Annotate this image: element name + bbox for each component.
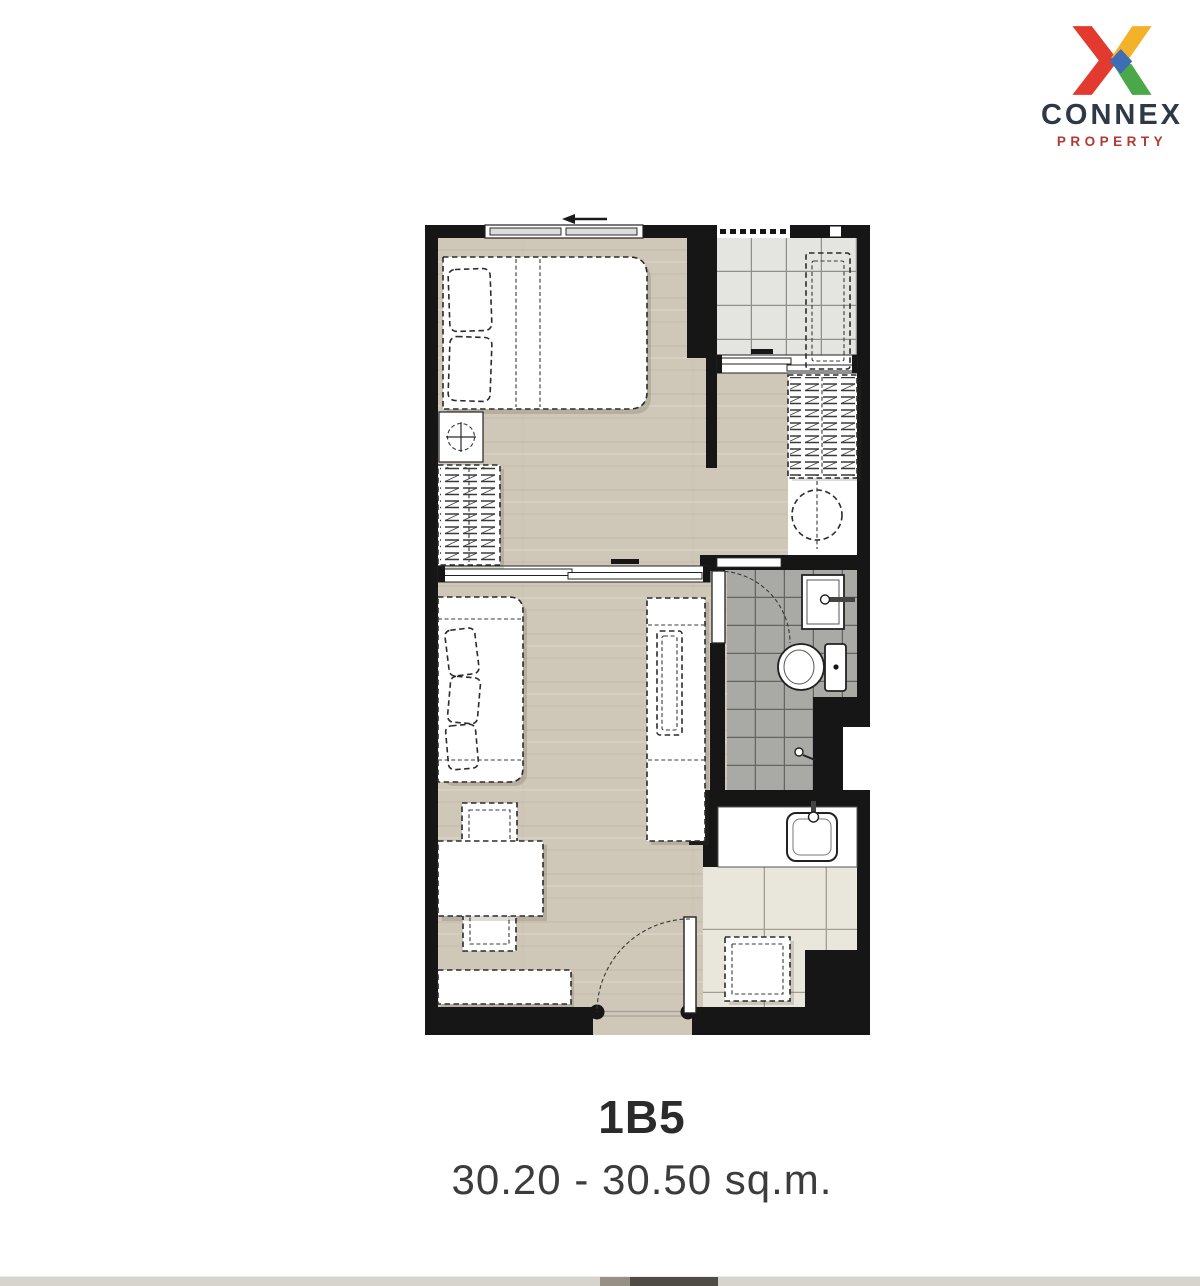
- wall-notch: [843, 727, 870, 790]
- floorplan-page: CONNEX PROPERTY: [0, 0, 1200, 1286]
- kitchen-counter: [718, 801, 857, 867]
- bedroom-wardrobe: [438, 465, 504, 569]
- low-cabinet: [438, 970, 574, 1007]
- sofa: [438, 597, 527, 786]
- double-bed: [443, 257, 651, 414]
- dining-table: [438, 841, 547, 921]
- floorplan-drawing: [425, 207, 870, 1035]
- next-image-edge-strip: [0, 1276, 1200, 1286]
- unit-name: 1B5: [342, 1090, 942, 1144]
- pillow: [448, 336, 492, 401]
- connex-x-icon: [1068, 26, 1156, 95]
- toilet: [778, 644, 846, 691]
- brand-tagline: PROPERTY: [1028, 134, 1196, 149]
- bedroom-window: [485, 225, 643, 238]
- unit-label-block: 1B5 30.20 - 30.50 sq.m.: [342, 1090, 942, 1204]
- tv-console: [647, 598, 709, 845]
- corridor-wardrobe: [788, 375, 861, 481]
- north-arrow-icon: [562, 214, 607, 224]
- brand-name: CONNEX: [1028, 99, 1196, 132]
- strip-segment-mid: [600, 1277, 630, 1286]
- kitchen-stool: [725, 937, 794, 1005]
- pillow: [448, 268, 492, 331]
- brand-logo: CONNEX PROPERTY: [1028, 26, 1196, 149]
- strip-segment-dark: [630, 1277, 718, 1286]
- unit-area-range: 30.20 - 30.50 sq.m.: [342, 1156, 942, 1204]
- dressing-stool: [439, 412, 483, 462]
- balcony-floor: [717, 238, 857, 355]
